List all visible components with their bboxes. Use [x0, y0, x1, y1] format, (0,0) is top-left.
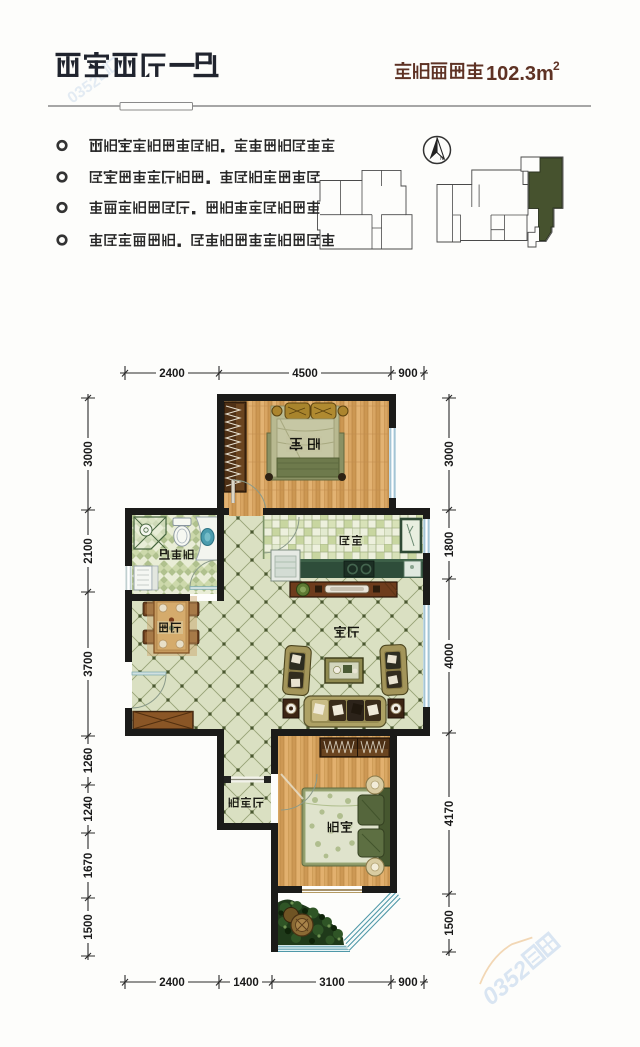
svg-text:2400: 2400: [159, 977, 185, 989]
svg-text:900: 900: [398, 977, 417, 989]
svg-text:4500: 4500: [292, 368, 318, 380]
svg-text:1500: 1500: [83, 914, 95, 940]
svg-text:3000: 3000: [444, 441, 456, 467]
svg-text:3000: 3000: [83, 441, 95, 467]
svg-text:1240: 1240: [83, 796, 95, 822]
svg-text:N: N: [440, 156, 444, 162]
svg-text:1260: 1260: [83, 748, 95, 774]
svg-text:2: 2: [553, 59, 560, 73]
svg-text:1400: 1400: [233, 977, 259, 989]
svg-text:900: 900: [398, 368, 417, 380]
svg-text:3100: 3100: [319, 977, 345, 989]
svg-text:4000: 4000: [444, 643, 456, 669]
svg-text:1500: 1500: [444, 910, 456, 936]
svg-text:2400: 2400: [159, 368, 185, 380]
svg-text:102.3m: 102.3m: [486, 63, 554, 85]
svg-text:1800: 1800: [444, 532, 456, 558]
svg-text:2100: 2100: [83, 538, 95, 564]
svg-text:4170: 4170: [444, 801, 456, 827]
svg-text:3700: 3700: [83, 651, 95, 677]
svg-text:1670: 1670: [83, 853, 95, 879]
